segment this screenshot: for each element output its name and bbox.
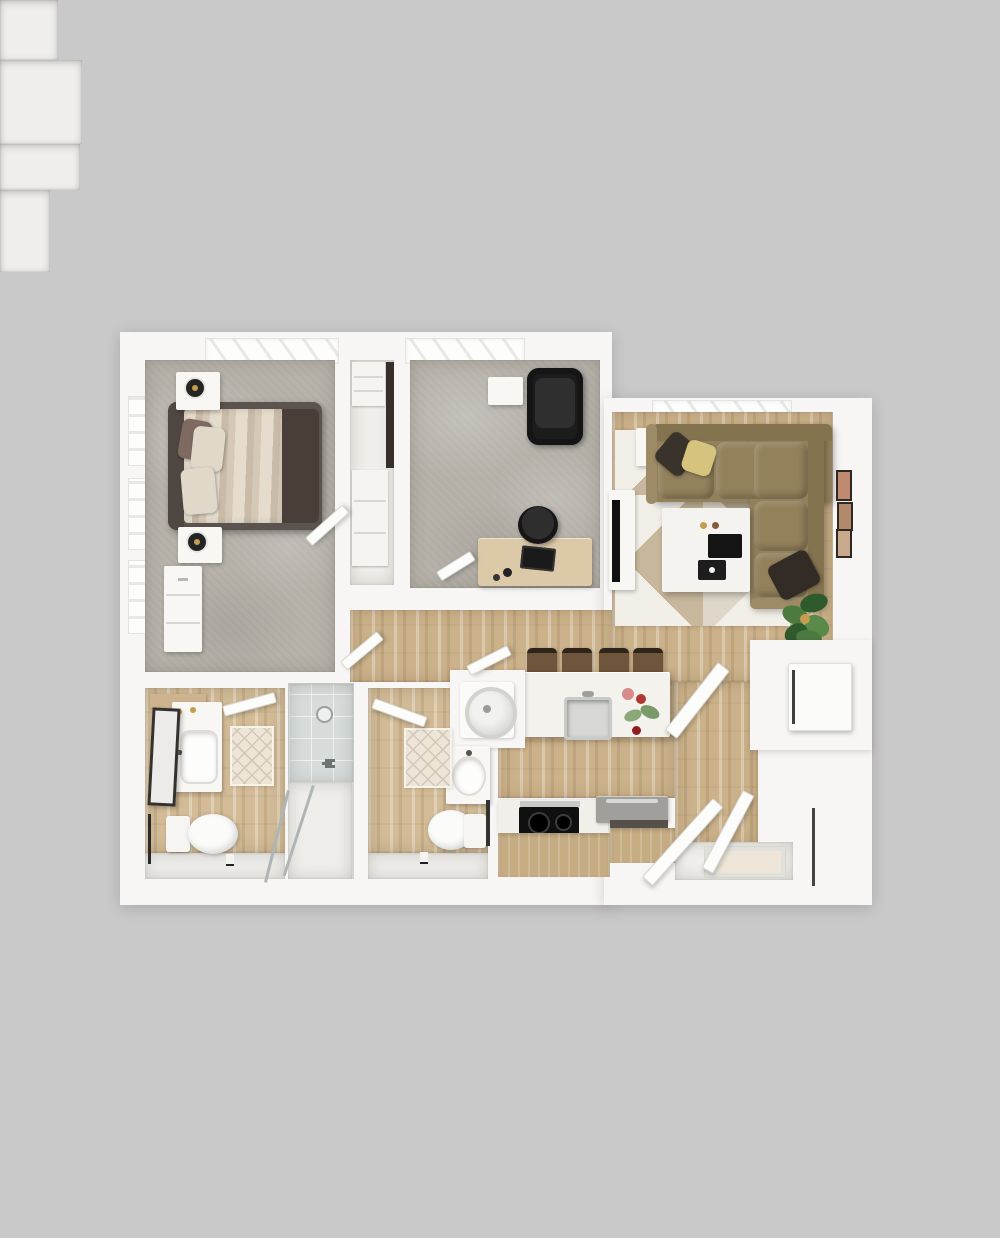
bathroom-2-floor-lower (368, 853, 488, 879)
desk-accessory-2 (493, 574, 500, 581)
entry-niche-door-edge (812, 808, 815, 886)
flower (636, 694, 646, 704)
hanging-clothes (386, 362, 394, 468)
shower-valve (322, 762, 332, 765)
base-cabinets-left (498, 833, 610, 877)
dresser-handle (178, 578, 188, 581)
bathroom-1-floor-lower (145, 853, 285, 879)
book (698, 560, 726, 580)
linen-closet-interior (0, 144, 80, 190)
wall-art-2 (837, 502, 853, 531)
bath1-leaning-mirror (147, 707, 180, 806)
bath2-toilet-tank (464, 814, 486, 848)
utility-appliance-handle (792, 670, 795, 724)
flower (632, 726, 641, 735)
bedroom-window-left-3 (128, 560, 146, 634)
bath1-toilet-tank (166, 816, 190, 852)
bath2-paper-holder (420, 852, 428, 862)
range-oven (596, 796, 668, 823)
closet-shelf-line (354, 390, 383, 392)
lounge-chair (527, 368, 583, 445)
burner-1 (528, 812, 550, 834)
table-lamp-top-finial (192, 385, 198, 391)
island-sink (564, 697, 612, 740)
shower-head (316, 706, 333, 723)
dresser-drawer-line-1 (166, 594, 200, 596)
closet-shelf-bottom (352, 470, 388, 566)
plant-pot (800, 614, 810, 624)
flower-leaf (623, 707, 644, 723)
washer-door (465, 687, 517, 739)
entry-niche (0, 190, 50, 272)
bath1-paper-holder (226, 854, 234, 864)
washer (460, 682, 514, 738)
laptop (520, 545, 556, 571)
oven-handle (606, 799, 658, 803)
bath1-towel-bar (148, 814, 151, 864)
island-faucet (582, 691, 594, 697)
pillow-2 (180, 467, 218, 516)
laundry-alcove-interior (0, 0, 58, 60)
dresser (164, 566, 202, 652)
bath2-sink (452, 756, 486, 796)
flower-leaf (638, 702, 661, 721)
coffee-cup-1 (700, 522, 707, 529)
bath2-towel-rack (486, 800, 490, 846)
bedroom-window-left-2 (128, 478, 146, 550)
shower-tile (288, 683, 354, 784)
bath1-decor-gold-2 (190, 707, 196, 713)
closet-shelf-line (354, 376, 383, 378)
coffee-cup-2 (712, 522, 719, 529)
office-chair (518, 506, 558, 544)
serving-tray (708, 534, 742, 558)
headboard (168, 402, 184, 530)
utility-appliance (788, 663, 852, 731)
closet-shelf-top (352, 362, 385, 406)
flower (622, 688, 634, 700)
office-side-table (488, 377, 523, 405)
closet-shelf-line (354, 500, 386, 502)
dresser-drawer-line-2 (166, 622, 200, 624)
sofa-cushion (754, 501, 808, 551)
floor-plan-scene (0, 0, 1000, 1238)
pillow-1 (190, 425, 226, 472)
book-emblem (709, 567, 715, 573)
flower-arrangement (614, 684, 664, 736)
sofa-arm-left (646, 424, 657, 504)
wall-art-1 (836, 470, 852, 501)
burner-2 (555, 814, 572, 831)
washer-door-hub (483, 705, 491, 713)
closet-shelf-line (354, 532, 386, 534)
utility-closet-interior (0, 60, 82, 144)
lounge-chair-seat (535, 378, 575, 428)
bath1-sink (180, 730, 218, 784)
sofa-cushion-corner (754, 442, 808, 499)
bedroom-window-left-1 (128, 396, 146, 466)
bath2-mat (404, 728, 452, 788)
tv (612, 500, 620, 582)
bath1-toilet-bowl (188, 814, 238, 854)
bath1-mat (230, 726, 274, 786)
cooktop (519, 807, 579, 835)
bath2-faucet (466, 750, 472, 756)
table-lamp-bottom-finial (194, 539, 200, 545)
bed-foot-band (282, 409, 319, 523)
oven-drawer (610, 820, 668, 828)
wall-art-3 (836, 529, 852, 558)
desk-accessory-1 (503, 568, 512, 577)
